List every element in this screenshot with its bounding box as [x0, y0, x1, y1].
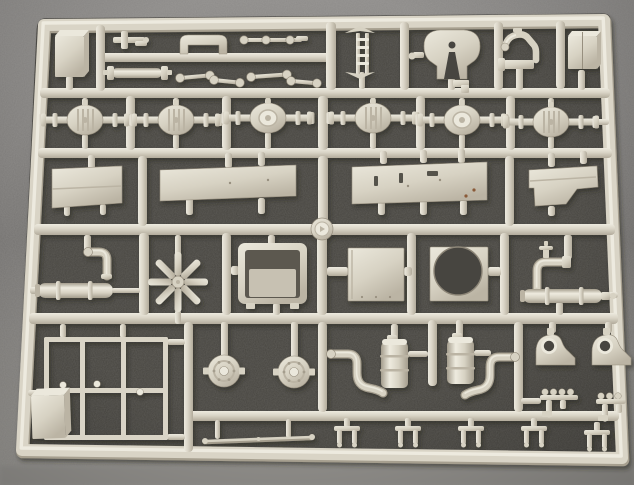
clip-pin-r — [413, 430, 418, 444]
panel-slot-2 — [427, 171, 438, 176]
muffler-collar-1 — [579, 287, 584, 305]
valve-top — [544, 241, 548, 246]
clip-ball-r — [602, 447, 607, 452]
sprue-gate-stub-58 — [215, 420, 220, 439]
rod-collar — [257, 437, 261, 441]
axle-collar-1 — [401, 111, 406, 125]
hubcap-tab-r — [239, 368, 245, 375]
panel-speck-1 — [464, 194, 467, 197]
valve-handle — [539, 246, 553, 250]
hubcap-bolt-1 — [228, 378, 231, 381]
sprue-gate-stub-4 — [578, 70, 585, 90]
panel-rivet-0 — [229, 182, 231, 184]
tank-band-1 — [446, 353, 475, 356]
part-flat-plate — [348, 248, 404, 301]
dogbone-ball-a — [246, 72, 255, 81]
grid-knob-1 — [94, 381, 101, 388]
axle-collar-1 — [204, 113, 209, 127]
tank-body — [381, 342, 408, 388]
clip-pin-l — [587, 434, 592, 448]
axle-collar-0 — [53, 113, 58, 127]
panel-speck-0 — [472, 188, 475, 191]
clip-pin-l — [337, 430, 342, 444]
sprue-gate-stub-51 — [167, 434, 185, 440]
part-tie-rod-cylinder — [103, 66, 172, 80]
fan-blade-6 — [148, 279, 172, 286]
tierod-pin-r — [167, 70, 172, 75]
sprue-photo — [0, 0, 634, 485]
sprue-gate-stub-44 — [564, 235, 572, 259]
axle-top-nub — [549, 102, 554, 108]
muffler-nozzle — [601, 292, 610, 300]
sprue-gate-stub-31 — [548, 153, 555, 167]
sprue-gate-stub-48 — [120, 324, 126, 338]
axle-hub — [265, 115, 271, 121]
runner-v-14 — [222, 233, 231, 315]
clip-pin-l — [524, 430, 529, 444]
tank-band-2 — [380, 369, 409, 372]
clip-ball-l — [398, 443, 403, 448]
hanger-hole — [544, 341, 554, 351]
grid-knob-2 — [137, 389, 144, 396]
tierod-pin-l — [103, 70, 108, 75]
part-tank-box-top-left — [55, 30, 89, 77]
sprue-gate-stub-26 — [420, 150, 427, 163]
hubcap-tab-l — [273, 369, 279, 376]
tierod-cap-l — [107, 66, 114, 80]
axle-flange-l — [224, 112, 229, 125]
axle-collar-1 — [296, 111, 301, 125]
sprue-gate-stub-18 — [88, 155, 95, 169]
tank-pipe-flange — [327, 350, 336, 359]
gooseneck-base — [504, 60, 534, 69]
box-front-face — [31, 395, 65, 439]
clip-ball-r — [539, 443, 544, 448]
clip-pin-r — [352, 430, 357, 444]
chain-ball-0 — [240, 36, 248, 44]
rod-ball-a — [202, 438, 208, 444]
sprue-gate-stub-24 — [258, 198, 265, 214]
ladder-rung-3 — [356, 62, 369, 65]
part-panel-long-a — [160, 165, 296, 201]
runner-v-7 — [318, 96, 328, 150]
chain-ball-1 — [262, 36, 270, 44]
clip-stub — [468, 418, 474, 427]
part-fan-star — [148, 252, 208, 312]
clip-ball-r — [352, 443, 357, 448]
axle-collar-1 — [579, 115, 584, 129]
sprue-gate-stub-23 — [186, 198, 193, 215]
axle-hub — [548, 119, 554, 125]
sprue-gate-stub-12 — [370, 132, 376, 149]
part-panel-long-b — [352, 162, 487, 204]
sprue-gate-stub-16 — [548, 136, 554, 149]
clip-stub — [344, 418, 350, 427]
tank-cap — [448, 337, 473, 343]
sprue-gate-stub-0 — [66, 76, 73, 90]
runner-v-13 — [139, 233, 149, 315]
runner-v-15 — [317, 233, 327, 315]
axle-top-nub — [266, 98, 271, 104]
elbow-cap — [101, 274, 112, 279]
sprue-gate-stub-21 — [225, 153, 232, 168]
chain-ball-2 — [286, 36, 294, 44]
axle-collar-0 — [519, 115, 524, 129]
rod-ball-b — [309, 434, 315, 440]
sprue-gate-stub-27 — [458, 149, 465, 163]
hubcap-center — [290, 368, 299, 377]
manifold-ball-3 — [567, 389, 574, 396]
muffler-body — [523, 289, 602, 303]
fan-blade-4 — [175, 288, 182, 312]
fifth-wheel-arm-ball — [409, 53, 416, 60]
axle-flange-r — [307, 112, 312, 125]
fan-blade-2 — [184, 279, 208, 286]
runner-v-4 — [556, 21, 565, 89]
sprue-gate-stub-59 — [286, 419, 291, 438]
axle-flange-l — [41, 114, 46, 127]
sprue-gate-stub-2 — [516, 66, 523, 90]
part-sprue-center-gate — [311, 218, 333, 240]
hubcap-bolt-0 — [233, 370, 236, 373]
panel-rivet-1 — [407, 185, 409, 187]
clip-ball-l — [587, 447, 592, 452]
valve-flange — [562, 256, 571, 268]
plate-rivet-0 — [361, 296, 363, 298]
sprue-gate-stub-8 — [173, 134, 179, 149]
axle-hub — [459, 117, 465, 123]
tank-cap — [382, 339, 407, 345]
box-front-face — [55, 36, 84, 77]
panel-slot-1 — [399, 173, 403, 183]
axle-flange-r — [215, 114, 220, 127]
hubcap-bolt-2 — [218, 378, 221, 381]
runner-v-0 — [96, 25, 105, 91]
clip-stub — [405, 418, 411, 427]
tierod-body — [112, 68, 162, 78]
sprue-gate-stub-56 — [408, 351, 428, 357]
scene-root — [0, 0, 634, 485]
axle-hub — [173, 117, 179, 123]
sprue-gate-stub-25 — [380, 151, 387, 164]
sprue-gate-stub-37 — [175, 310, 181, 324]
sprue-gate-stub-39 — [273, 303, 280, 315]
tank-body — [447, 340, 474, 384]
manifold-bar — [596, 399, 626, 404]
valve-stem — [543, 249, 549, 258]
plate-rivet-2 — [389, 296, 391, 298]
hanger-hole — [600, 341, 610, 351]
runner-v-21 — [514, 322, 523, 412]
clip-bar — [584, 430, 610, 435]
runner-v-12 — [505, 156, 514, 226]
sprue-gate-stub-33 — [548, 206, 555, 216]
axle-flange-l — [329, 112, 334, 125]
muffler-tip — [610, 293, 616, 299]
manifold-ball-0 — [598, 393, 605, 400]
plate-rivet-1 — [375, 296, 377, 298]
sprue-gate-stub-10 — [265, 132, 271, 149]
runner-v-2 — [400, 22, 409, 90]
hubcap-bolt-3 — [283, 371, 286, 374]
clip-ball-l — [524, 443, 529, 448]
grid-hbar-0 — [44, 337, 168, 342]
axle-top-nub — [460, 100, 465, 106]
fan-blade-0 — [175, 252, 182, 276]
box-side-face — [84, 30, 89, 77]
part-panel-small-left — [52, 166, 122, 208]
muffler-body — [38, 283, 113, 298]
hubcap-bolt-5 — [298, 362, 301, 365]
runner-v-17 — [500, 233, 509, 315]
hubcap-bolt-4 — [288, 362, 291, 365]
manifold-pin-2 — [616, 404, 622, 413]
runner-h-0 — [96, 53, 334, 62]
grid-knob-0 — [60, 382, 67, 389]
clip-pin-r — [602, 434, 607, 448]
tray-floor — [249, 269, 296, 297]
panel-rivet-0 — [439, 179, 441, 181]
elbow-flange — [84, 248, 93, 257]
axle-top-nub — [174, 100, 179, 106]
sprue-gate-stub-40 — [231, 266, 239, 275]
manifold-foot — [542, 411, 552, 417]
tank-band-1 — [380, 355, 409, 358]
hubcap-tab-r — [309, 369, 315, 376]
runner-v-10 — [138, 156, 147, 226]
axle-collar-0 — [341, 111, 346, 125]
tierod-cap-r — [161, 66, 168, 80]
axle-collar-1 — [490, 113, 495, 127]
clip-bar — [521, 426, 547, 431]
hubcap-bolt-5 — [228, 361, 231, 364]
gooseneck-stem — [516, 30, 519, 36]
panel-rivet-1 — [267, 179, 269, 181]
clip-ball-r — [413, 443, 418, 448]
hubcap-bolt-2 — [288, 379, 291, 382]
muffler-collar-0 — [545, 287, 550, 305]
fifth-wheel-hole — [449, 42, 456, 49]
clip-bar — [395, 426, 421, 431]
clip-bar — [334, 426, 360, 431]
grid-vbar-3 — [163, 337, 168, 440]
hanger-nub — [547, 328, 554, 335]
sprue-gate-stub-53 — [291, 322, 298, 358]
manifold-ball-2 — [615, 393, 622, 400]
axle-flange-l — [418, 114, 423, 127]
sprue-gate-stub-47 — [60, 324, 66, 338]
manifold-pin-2 — [560, 400, 566, 409]
sprue-gate-stub-62 — [521, 398, 541, 404]
axle-hub — [370, 115, 376, 121]
muffler-collar-1 — [88, 281, 93, 300]
axle-hub — [82, 117, 88, 123]
axle-collar-0 — [430, 113, 435, 127]
panel-face — [160, 165, 296, 201]
hanger-nub — [603, 328, 610, 335]
bracket-ball — [143, 37, 149, 43]
hubcap-bolt-0 — [303, 371, 306, 374]
axle-flange-l — [503, 116, 508, 129]
sprue-gate-stub-14 — [459, 134, 465, 149]
sprue-gate-stub-52 — [221, 322, 228, 357]
clip-ball-l — [461, 443, 466, 448]
fifth-wheel-step2 — [461, 85, 469, 93]
ladder-rung-0 — [356, 38, 369, 41]
axle-top-nub — [371, 98, 376, 104]
axle-flange-l — [132, 114, 137, 127]
axle-collar-1 — [113, 113, 118, 127]
sprue-gate-stub-57 — [474, 350, 491, 356]
manifold-ball-1 — [606, 393, 613, 400]
manifold-ball-2 — [559, 389, 566, 396]
axle-top-nub — [83, 100, 88, 106]
part-open-tray-box — [238, 243, 307, 309]
axle-collar-0 — [144, 113, 149, 127]
part-tank-box-top-right — [568, 31, 601, 69]
tray-foot-l — [246, 303, 255, 309]
fan-hub-dot — [176, 280, 180, 284]
runner-v-11 — [318, 156, 328, 226]
grid-vbar-1 — [80, 337, 85, 440]
axle-collar-0 — [236, 111, 241, 125]
gooseneck-cap — [501, 43, 509, 51]
hubcap-bolt-4 — [218, 361, 221, 364]
clip-pin-r — [539, 430, 544, 444]
runner-v-3 — [494, 22, 503, 90]
box-side-face — [597, 31, 601, 69]
tray-foot-r — [290, 303, 299, 309]
box-top-face — [568, 31, 601, 36]
sprue-gate-stub-22 — [258, 152, 265, 166]
runner-v-1 — [326, 22, 336, 90]
muffler-cap — [35, 284, 40, 297]
panel-face — [352, 162, 487, 204]
sprue-gate-stub-6 — [82, 134, 88, 149]
muffler-collar-0 — [56, 281, 61, 300]
sprue-gate-stub-50 — [167, 339, 185, 345]
panel-slot-0 — [374, 176, 378, 186]
sprue-gate-stub-32 — [580, 151, 587, 164]
runner-h-5 — [187, 411, 619, 421]
manifold-ball-0 — [542, 389, 549, 396]
manifold-ball-1 — [550, 389, 557, 396]
ladder-rung-2 — [356, 54, 369, 57]
hubcap-bolt-1 — [298, 379, 301, 382]
clip-ball-l — [337, 443, 342, 448]
chain-fitting — [296, 36, 308, 41]
sprue-gate-stub-41 — [327, 267, 348, 276]
sprue-gate-stub-30 — [460, 200, 467, 215]
clip-ball-r — [476, 443, 481, 448]
clip-bar — [458, 426, 484, 431]
clip-stub — [531, 418, 537, 427]
sprue-photo-svg — [0, 0, 634, 485]
bracket-post — [121, 31, 128, 49]
gooseneck-flange — [498, 58, 505, 71]
tank-pipe-flange — [511, 353, 520, 362]
muffler-cap — [520, 290, 525, 302]
manifold-foot — [598, 415, 608, 421]
axle-flange-r — [124, 114, 129, 127]
clip-stub — [594, 422, 600, 431]
plate-face — [348, 248, 404, 301]
axle-flange-r — [594, 116, 599, 129]
sprue-gate-stub-42 — [404, 267, 412, 276]
clip-pin-l — [461, 430, 466, 444]
muffler-tail — [112, 288, 140, 293]
runner-v-20 — [428, 320, 437, 386]
hubcap-tab-l — [203, 368, 209, 375]
sprue-gate-stub-43 — [488, 267, 501, 276]
grid-vbar-2 — [121, 337, 126, 440]
hubcap-bolt-3 — [213, 370, 216, 373]
part-plate-round-hole — [430, 247, 488, 301]
part-battery-box-bottom-left — [31, 388, 72, 439]
hubcap-center — [220, 367, 229, 376]
runner-v-19 — [318, 322, 327, 412]
sprue-gate-stub-20 — [100, 204, 106, 215]
sprue-gate-stub-45 — [556, 302, 563, 315]
box-top-face — [55, 30, 89, 36]
ladder-rung-1 — [356, 46, 369, 49]
tank-band-2 — [446, 367, 475, 370]
manifold-bar — [540, 395, 578, 400]
runner-v-18 — [184, 322, 193, 452]
clip-pin-r — [476, 430, 481, 444]
clip-pin-l — [398, 430, 403, 444]
